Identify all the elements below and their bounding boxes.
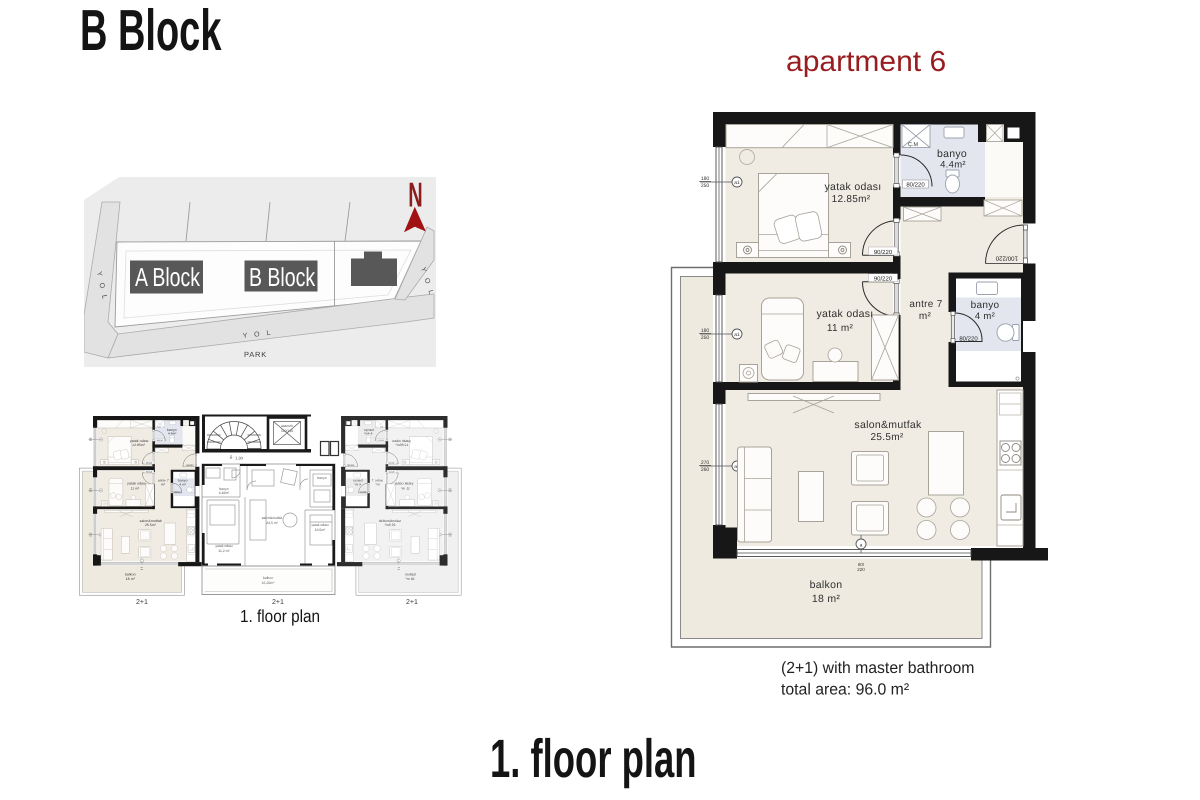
svg-text:260: 260	[701, 467, 710, 473]
svg-text:1. floor plan: 1. floor plan	[490, 729, 697, 789]
svg-text:balkon: balkon	[263, 576, 273, 580]
svg-text:2+1: 2+1	[272, 599, 284, 606]
svg-text:a: a	[860, 543, 863, 549]
svg-text:a1: a1	[734, 332, 740, 338]
svg-text:25.5m²: 25.5m²	[871, 432, 904, 443]
svg-text:balkon: balkon	[810, 579, 843, 591]
svg-text:110/140: 110/140	[281, 429, 293, 433]
svg-text:m²: m²	[919, 311, 932, 322]
svg-text:asansör: asansör	[281, 424, 294, 428]
svg-text:80/220: 80/220	[906, 182, 925, 189]
svg-text:2+1: 2+1	[406, 599, 418, 606]
svg-text:PARK: PARK	[244, 350, 267, 359]
svg-text:Ç.M: Ç.M	[908, 142, 919, 148]
svg-text:banyo: banyo	[317, 476, 326, 480]
svg-text:2+1: 2+1	[136, 599, 148, 606]
svg-text:250: 250	[701, 183, 710, 189]
svg-text:1.30: 1.30	[235, 456, 244, 461]
svg-text:(2+1) with master bathroom: (2+1) with master bathroom	[781, 659, 974, 677]
svg-text:220: 220	[857, 567, 865, 572]
svg-text:90/220: 90/220	[874, 276, 893, 283]
svg-text:yatak odası: yatak odası	[817, 308, 874, 320]
svg-text:80/220: 80/220	[959, 336, 978, 343]
svg-text:antre 7: antre 7	[909, 299, 942, 310]
svg-text:A Block: A Block	[135, 262, 201, 292]
svg-text:4 m²: 4 m²	[975, 311, 995, 322]
svg-text:250: 250	[701, 335, 710, 341]
svg-text:yatak odası: yatak odası	[215, 544, 232, 548]
svg-text:a1: a1	[734, 180, 740, 186]
svg-text:10,5m²: 10,5m²	[315, 528, 326, 532]
svg-text:270: 270	[701, 460, 710, 466]
svg-text:24,5 m²: 24,5 m²	[266, 521, 278, 525]
svg-text:salon&mutfak: salon&mutfak	[854, 419, 922, 431]
svg-text:180: 180	[701, 328, 710, 334]
svg-text:B Block: B Block	[80, 0, 222, 63]
svg-text:banyo: banyo	[937, 148, 967, 160]
svg-text:4.4m²: 4.4m²	[940, 160, 966, 171]
svg-text:1. floor plan: 1. floor plan	[240, 606, 320, 626]
svg-text:100/220: 100/220	[995, 255, 1018, 262]
svg-text:18 m²: 18 m²	[812, 593, 841, 605]
svg-text:180: 180	[701, 176, 710, 182]
svg-text:11,2 m²: 11,2 m²	[218, 549, 230, 553]
svg-text:yatak odası: yatak odası	[825, 181, 882, 193]
svg-text:yatak odası: yatak odası	[311, 523, 328, 527]
svg-text:11 m²: 11 m²	[827, 323, 854, 334]
svg-text:salon&mutfak: salon&mutfak	[262, 516, 283, 520]
svg-text:12.85m²: 12.85m²	[832, 194, 871, 205]
svg-text:total area: 96.0 m²: total area: 96.0 m²	[781, 681, 910, 699]
svg-text:16,20m²: 16,20m²	[262, 581, 276, 585]
svg-text:90/220: 90/220	[874, 249, 893, 256]
svg-text:B Block: B Block	[249, 262, 316, 292]
svg-text:4,10m²: 4,10m²	[219, 491, 230, 495]
svg-text:banyo: banyo	[971, 300, 1000, 311]
svg-text:apartment 6: apartment 6	[786, 46, 946, 78]
